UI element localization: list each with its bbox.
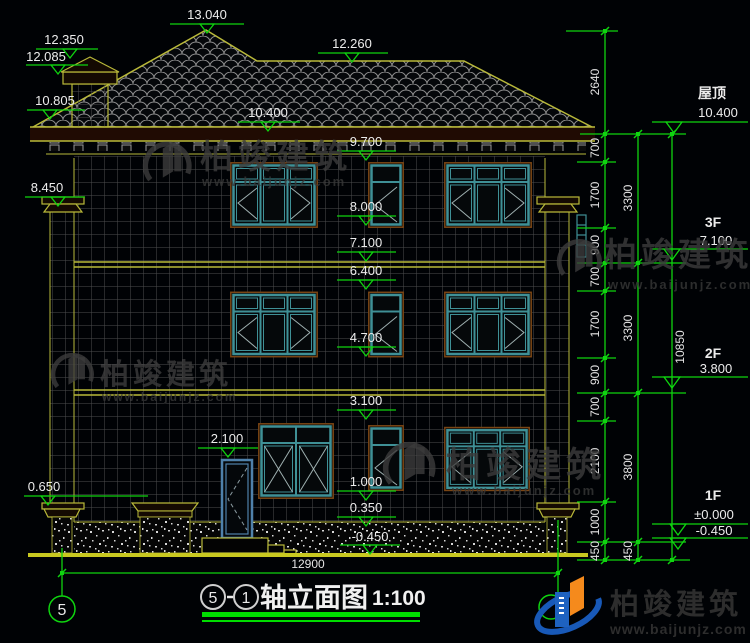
elevation-value: -0.450: [352, 529, 389, 544]
floor-label: 屋顶: [698, 85, 726, 101]
pilaster-right-capital: [537, 197, 579, 204]
roof: [30, 30, 595, 154]
porch-pier: [132, 503, 198, 553]
axis-number: 5: [58, 602, 67, 619]
dim-value: 700: [588, 397, 602, 417]
brand-logo-icon: [570, 576, 584, 616]
dim-value: 1000: [588, 508, 602, 535]
title-underline-thin: [202, 620, 420, 622]
elevation-value: 13.040: [187, 7, 227, 22]
window-3f-stair: [369, 163, 403, 227]
elevation-value: 12.350: [44, 32, 84, 47]
floor-elevation: 3.800: [700, 361, 733, 376]
dim-value: 900: [588, 365, 602, 385]
dim-value: 700: [588, 138, 602, 158]
title-axis-start: 5: [209, 590, 218, 607]
drawing-title: 5 1 轴立面图 1:100: [201, 582, 426, 622]
floor-label: 1F: [705, 487, 722, 503]
elevation-value: 9.700: [350, 134, 383, 149]
elevation-drawing: 2640 700 1700 900 700 1700 900 700 2100 …: [0, 0, 750, 643]
watermark-url: www.baijunjz.com: [201, 174, 346, 189]
brand-name: 柏竣建筑: [610, 587, 742, 621]
elevation-value: 1.000: [350, 474, 383, 489]
dim-value: 700: [588, 267, 602, 287]
watermark-url: www.baijunjz.com: [607, 277, 750, 292]
floor-marker-2f: 2F 3.800: [652, 345, 748, 388]
brand-url: www.baijunjz.com: [609, 621, 747, 637]
watermark-url: www.baijunjz.com: [451, 483, 596, 498]
watermark-name: 柏竣建筑: [100, 357, 232, 391]
entry-door: [222, 460, 252, 538]
title-underline-thick: [202, 612, 420, 617]
dim-total-height: 10850: [673, 330, 687, 364]
dim-value: 3300: [621, 314, 635, 341]
floor-elevation: -0.450: [696, 523, 733, 538]
dim-value: 2640: [588, 68, 602, 95]
elevation-value: 4.700: [350, 330, 383, 345]
watermark-url: www.baijunjz.com: [101, 390, 238, 404]
elevation-value: 10.805: [35, 93, 75, 108]
elevation-value: 2.100: [211, 431, 244, 446]
elevation-value: 10.400: [248, 105, 288, 120]
elevation-value: 8.000: [350, 199, 383, 214]
floor-elevation: ±0.000: [694, 507, 734, 522]
watermark-name: 柏竣建筑: [604, 236, 750, 273]
cad-canvas: 2640 700 1700 900 700 1700 900 700 2100 …: [0, 0, 750, 643]
window-2f-right: [445, 292, 531, 356]
elevation-value: 0.350: [350, 500, 383, 515]
pilaster-right-base: [537, 503, 579, 509]
elevation-value: 8.450: [31, 180, 64, 195]
dim-value: 450: [621, 541, 635, 561]
window-3f-right: [445, 163, 531, 227]
floor-marker-roof: 屋顶 10.400: [652, 85, 748, 133]
title-axis-end: 1: [242, 590, 251, 607]
floor-elevation: 10.400: [698, 105, 738, 120]
brand-logo: 柏竣建筑 www.baijunjz.com: [531, 576, 746, 640]
elevation-value: 12.085: [26, 49, 66, 64]
dim-value: 3300: [621, 184, 635, 211]
elevation-value: 3.100: [350, 393, 383, 408]
axis-bubble-5: 5: [49, 596, 75, 622]
title-text: 轴立面图: [260, 582, 368, 613]
floor-marker-ground: -0.450: [652, 523, 748, 549]
dim-value: 450: [588, 541, 602, 561]
overall-width-value: 12900: [291, 557, 325, 571]
watermark-name: 柏竣建筑: [446, 445, 606, 485]
title-scale: 1:100: [372, 587, 426, 610]
elevation-value: 12.260: [332, 36, 372, 51]
elevation-value: 6.400: [350, 263, 383, 278]
window-2f-left: [231, 292, 317, 356]
dim-value: 1700: [588, 181, 602, 208]
dim-value: 3800: [621, 453, 635, 480]
watermark-name: 柏竣建筑: [200, 138, 352, 175]
window-1f-left: [259, 424, 333, 498]
floor-label: 2F: [705, 345, 722, 361]
floor-label: 3F: [705, 214, 722, 230]
elevation-value: 0.650: [28, 479, 61, 494]
elevation-marker-roof-right: 12.260: [318, 36, 388, 62]
elevation-value: 7.100: [350, 235, 383, 250]
dim-value: 1700: [588, 310, 602, 337]
elevation-marker-ridge: 13.040: [170, 7, 244, 33]
